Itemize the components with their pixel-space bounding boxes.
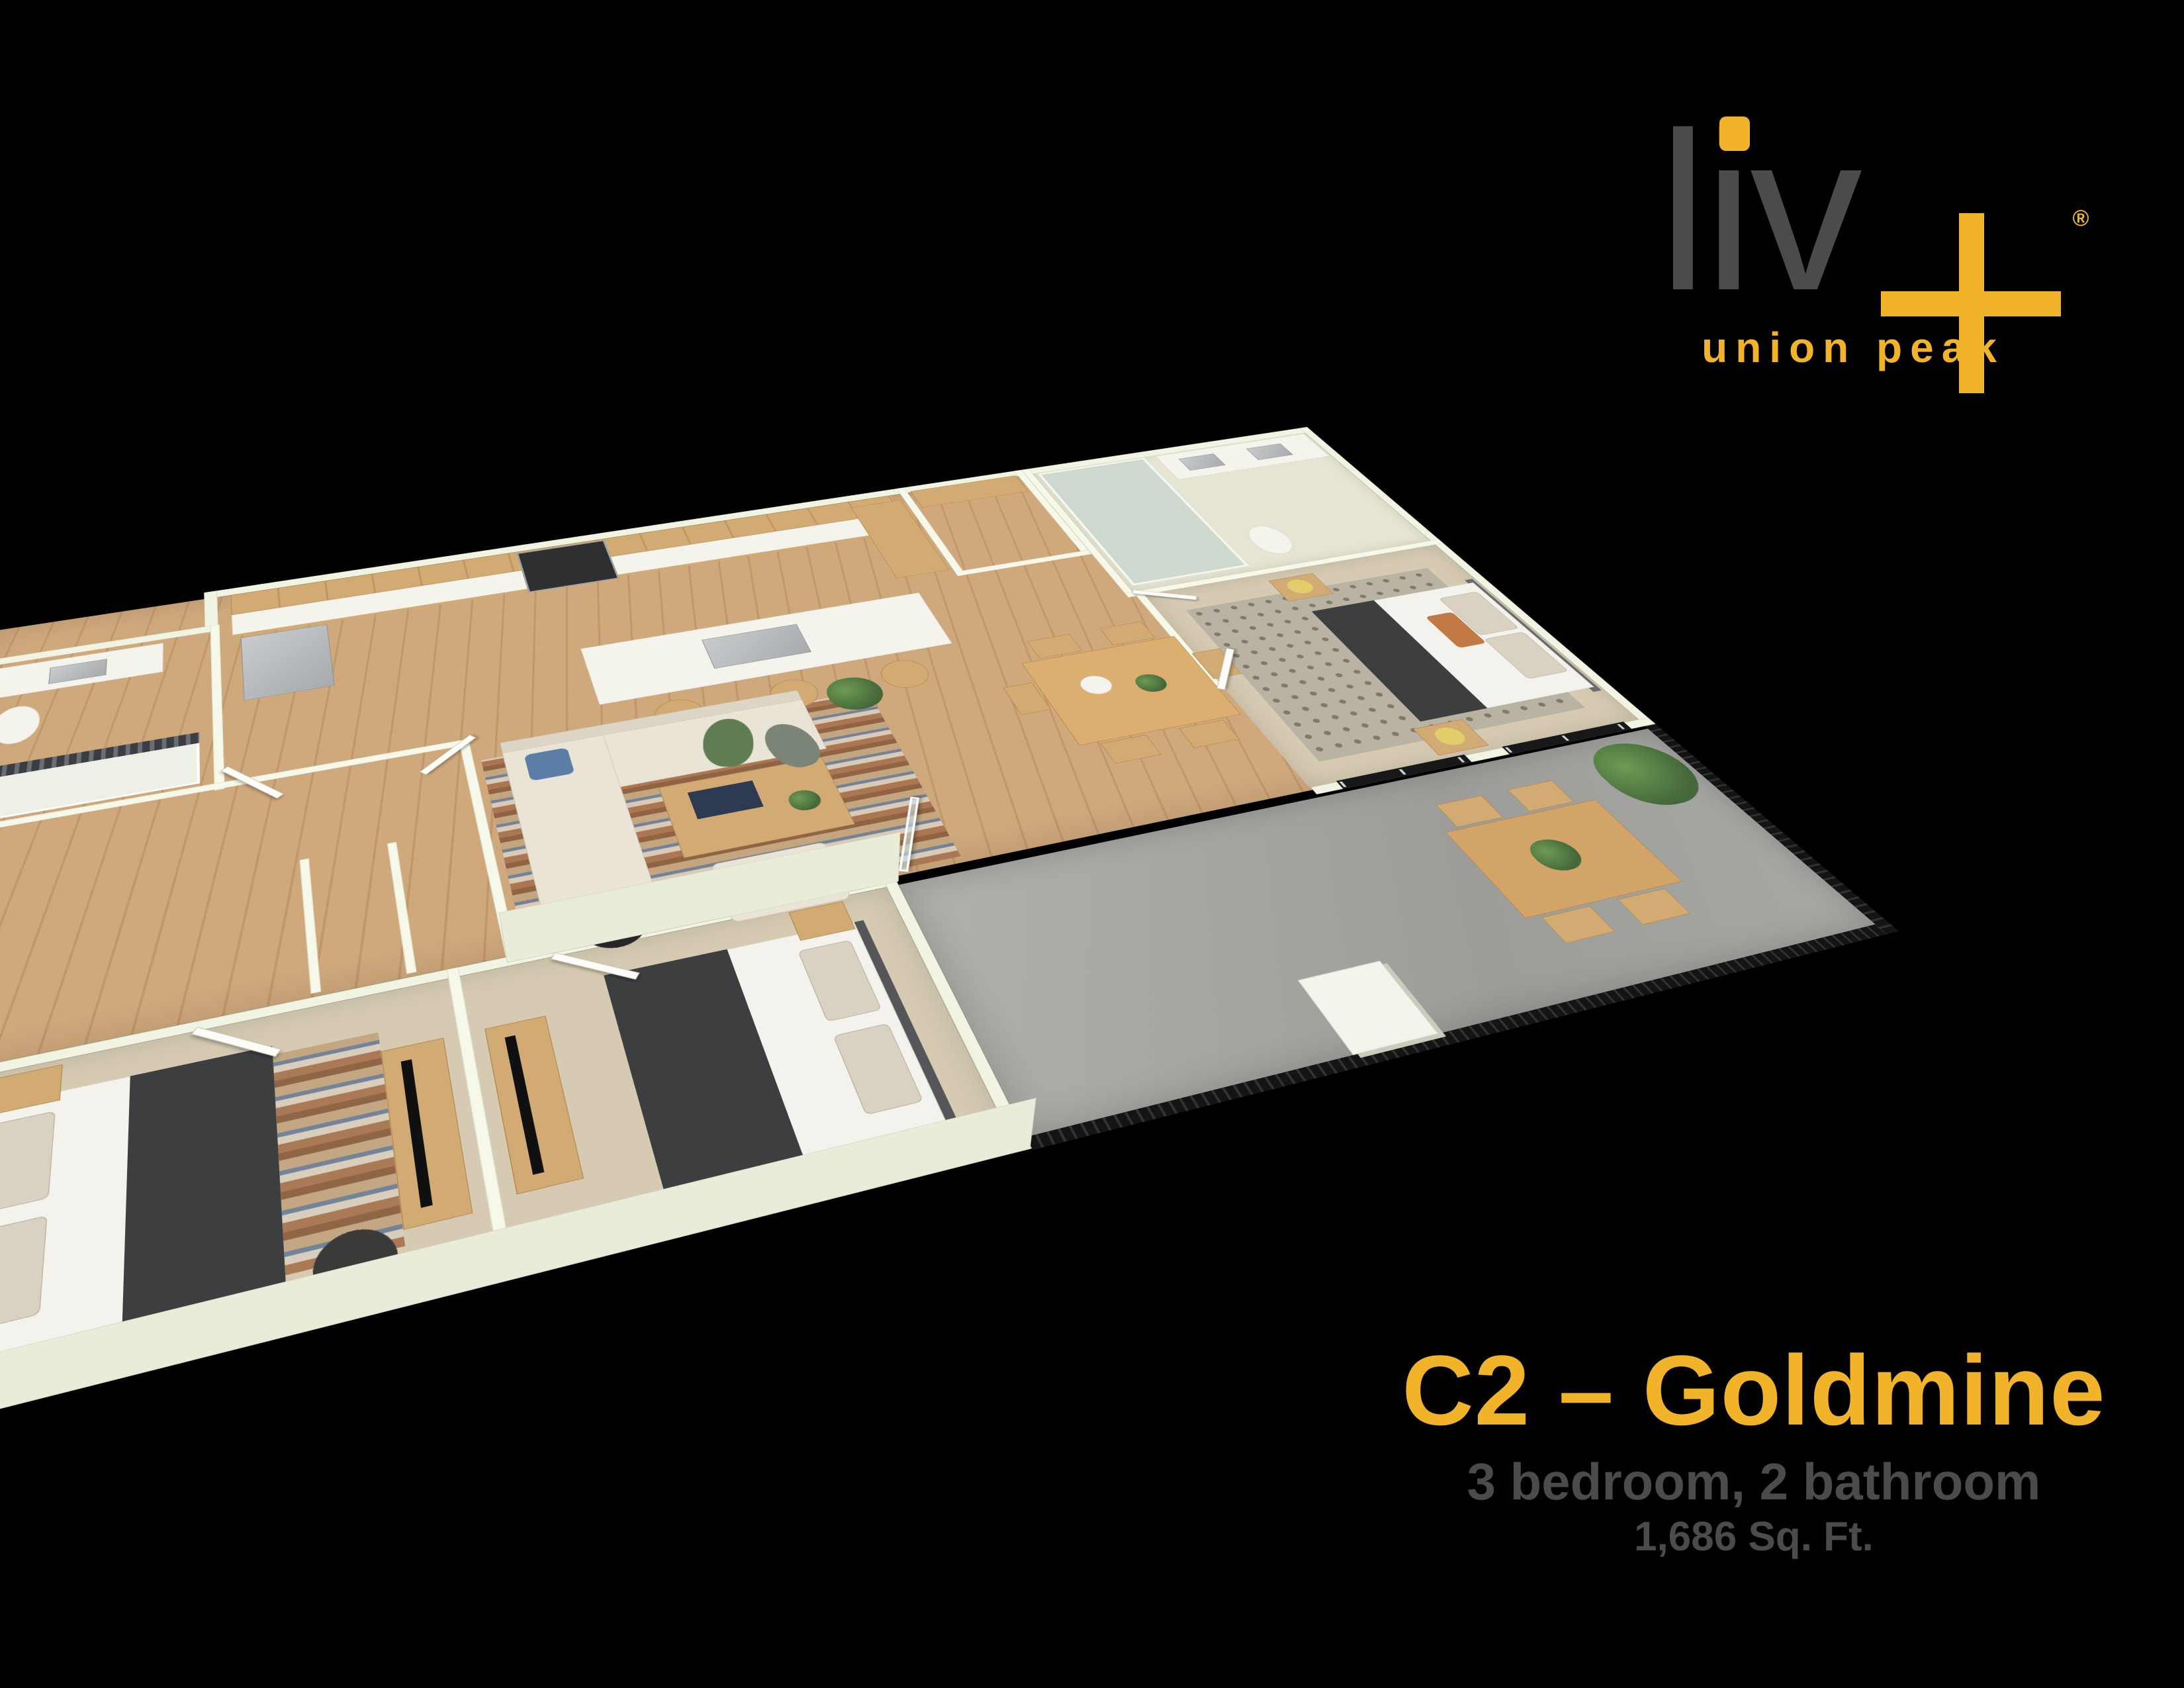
logo-wordmark: liv: [1658, 99, 1858, 324]
plan-square-footage: 1,686 Sq. Ft.: [1357, 1515, 2151, 1560]
logo-i-dot: [1719, 117, 1750, 151]
plus-horizontal-bar: [1881, 291, 2061, 316]
plan-bed-bath: 3 bedroom, 2 bathroom: [1357, 1454, 2151, 1509]
bed2-pillow-1: [0, 1111, 56, 1213]
logo-row: liv ® union peak: [1588, 99, 2118, 410]
page: liv ® union peak C2 – Goldmine 3 bedroom…: [0, 0, 2184, 1688]
plan-name: C2 – Goldmine: [1357, 1337, 2151, 1443]
brand-logo: liv ® union peak: [1588, 99, 2118, 410]
brand-tagline: union peak: [1588, 323, 2118, 372]
registered-trademark: ®: [2068, 205, 2094, 232]
floor-plan-3d: [0, 427, 1897, 1454]
plan-info-block: C2 – Goldmine 3 bedroom, 2 bathroom 1,68…: [1357, 1337, 2151, 1560]
